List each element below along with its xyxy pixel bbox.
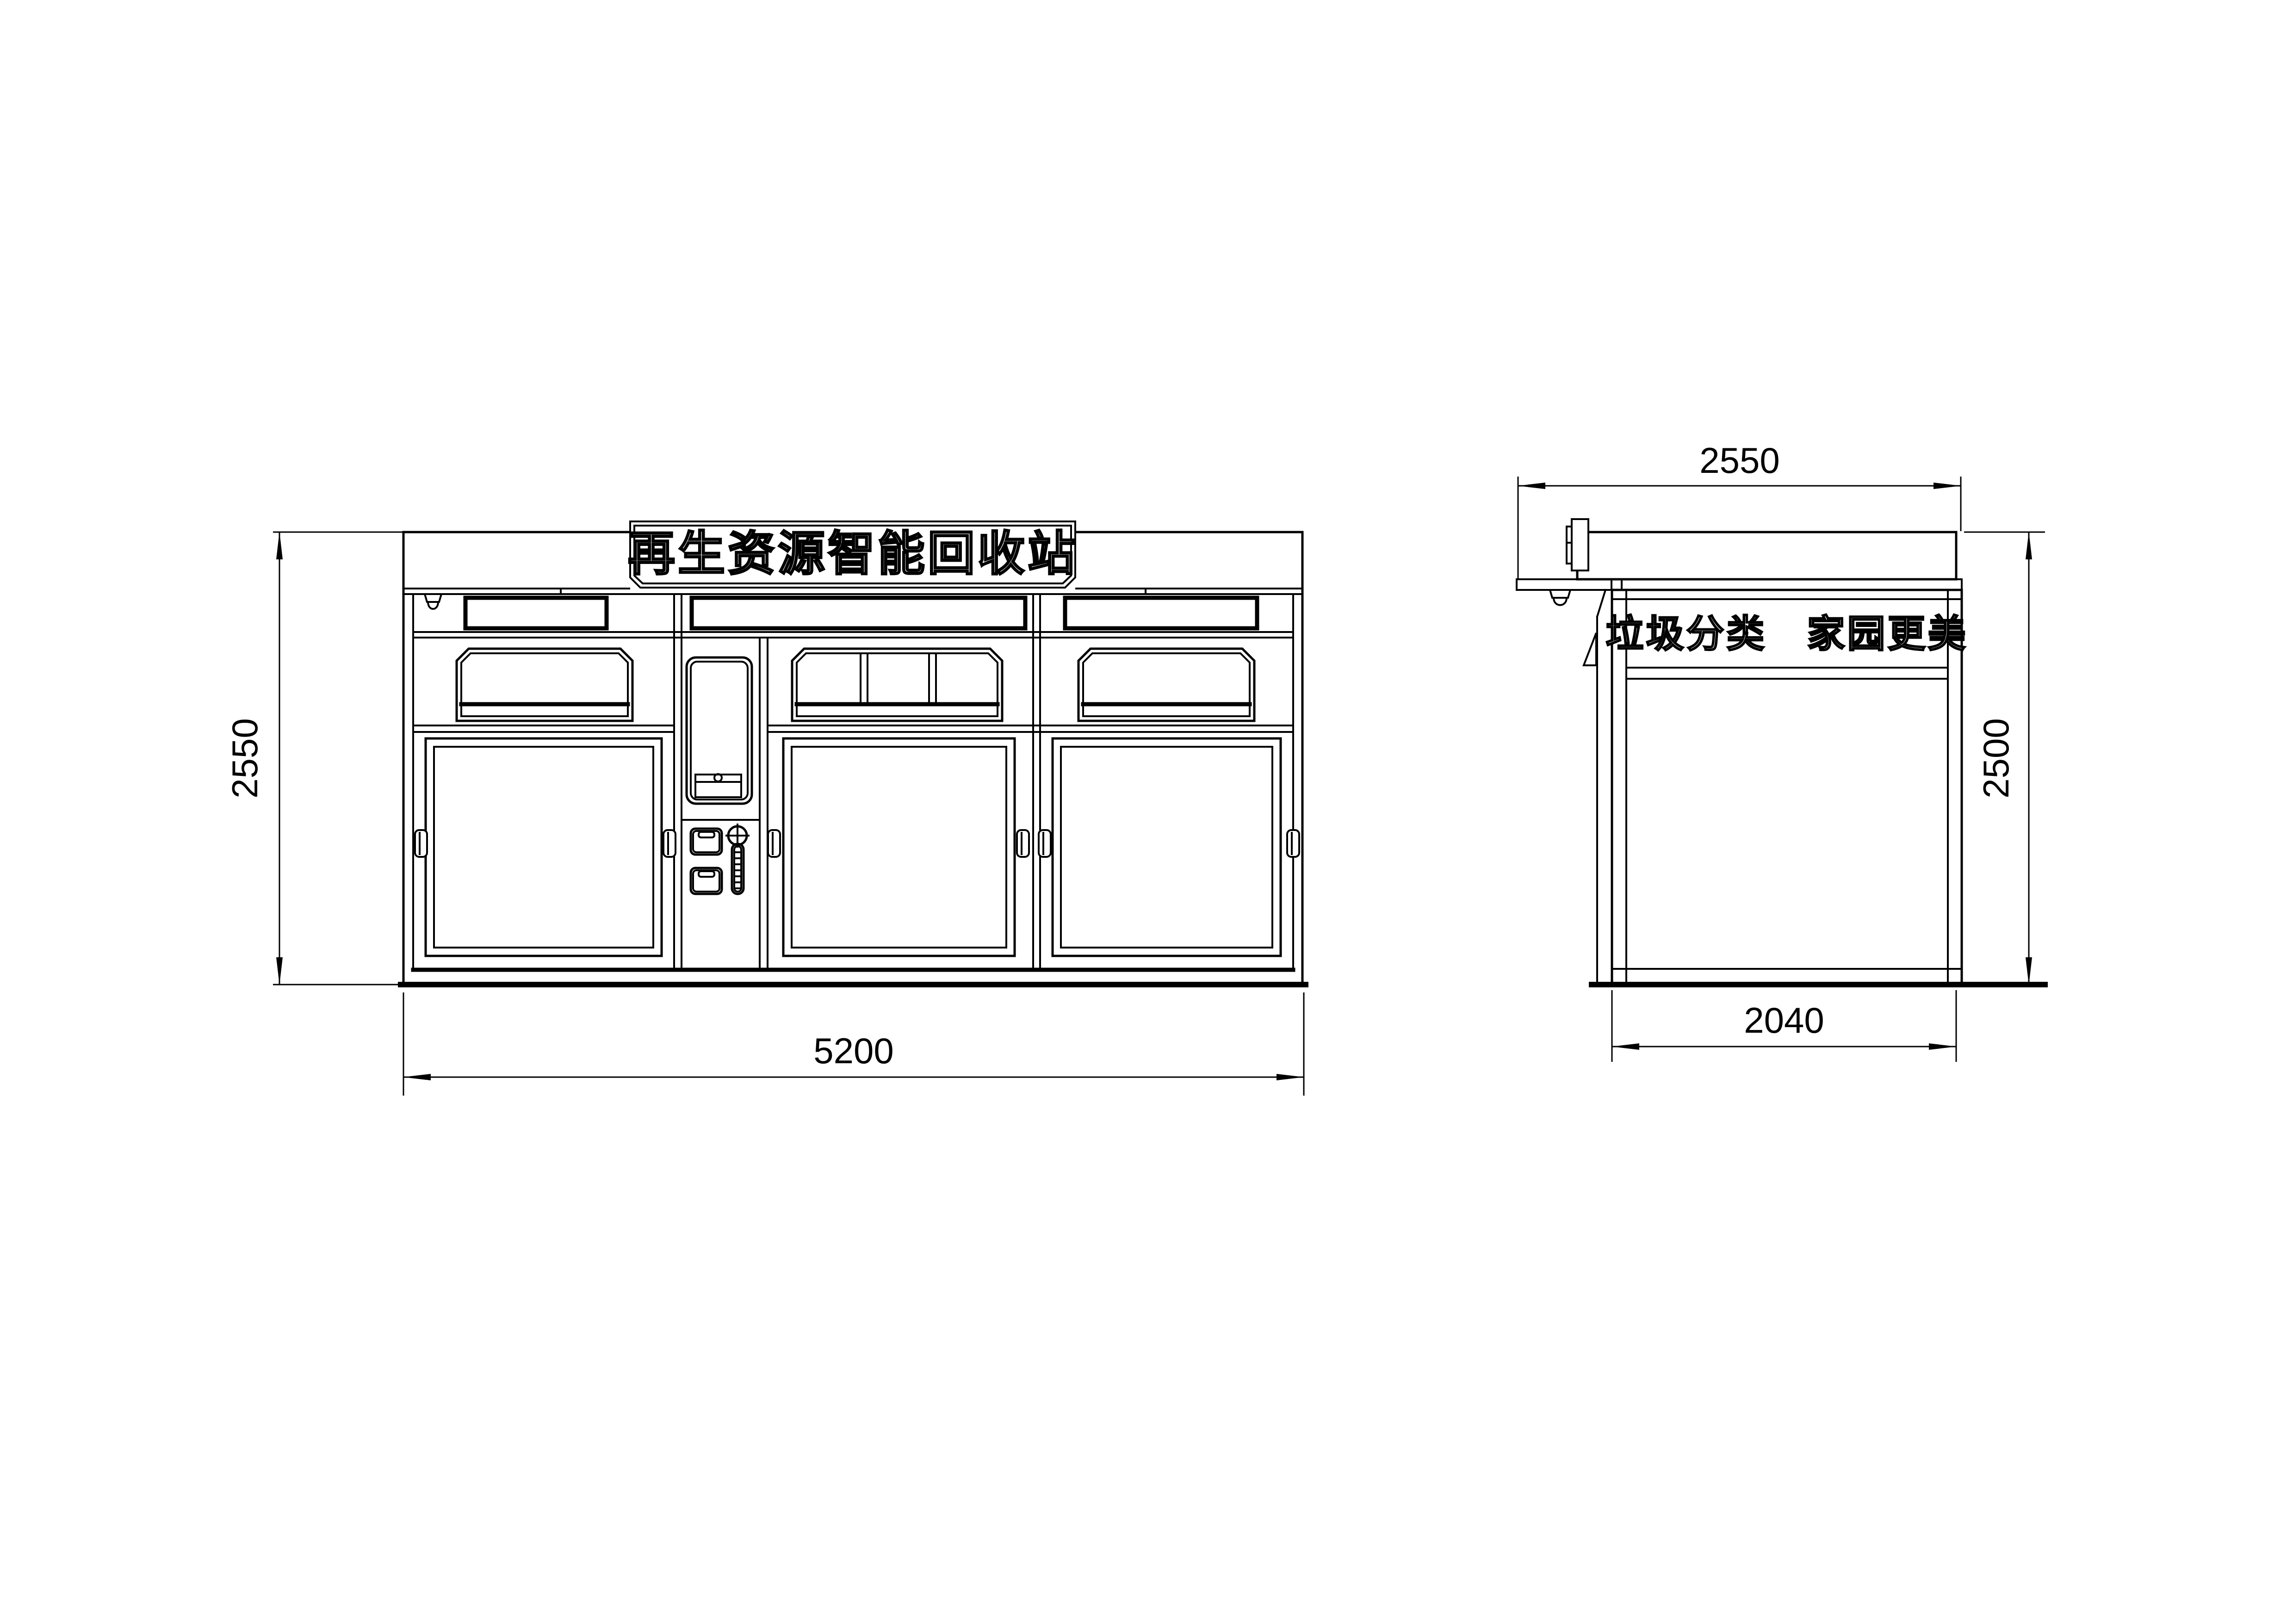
kiosk-column [682, 657, 760, 894]
dim-front-width: 5200 [403, 992, 1304, 1096]
door-outer [426, 738, 662, 956]
ad-slot-right [1065, 598, 1257, 628]
drawing-sheet: 再生资源智能回收站 [0, 0, 2293, 1624]
mid-band-lines [413, 725, 1293, 732]
door-outer [783, 738, 1015, 956]
door-handle [415, 830, 427, 857]
gusset-plate [1584, 633, 1596, 665]
banner-edge [1572, 519, 1588, 570]
door-outer [1053, 738, 1281, 956]
deposit-hopper-left [457, 649, 632, 721]
ad-slot-row [465, 598, 1257, 628]
hopper-outer [457, 649, 632, 721]
door-inner [792, 747, 1006, 948]
lock-ladder-lines [734, 852, 741, 888]
recycling-station-drawing: 再生资源智能回收站 [0, 0, 2293, 1624]
fascia-seams [1611, 579, 1622, 590]
sorting-windows [792, 649, 1002, 721]
dome-sensor-icon [1550, 590, 1570, 605]
dim-label-side-height: 2500 [1976, 718, 2016, 799]
inner-walls [413, 594, 1293, 970]
canopy-strut [1584, 590, 1605, 985]
dispenser-inner [693, 870, 719, 892]
slogan-text: 垃圾分类 家园更美 [1605, 613, 1968, 655]
cam-lock-icon [726, 824, 749, 894]
kiosk-column-wall [760, 638, 768, 970]
door-handle [663, 830, 676, 857]
banner-sign: 再生资源智能回收站 [628, 521, 1078, 588]
dome-sensor-icon [425, 594, 441, 609]
dim-label-front-width: 5200 [813, 1030, 894, 1071]
hopper-outer [1078, 649, 1254, 721]
slogan-band: 垃圾分类 家园更美 [1605, 613, 1968, 679]
hopper-inner [1083, 653, 1250, 716]
extension-lines [273, 532, 407, 985]
upper-band-lines [413, 632, 1293, 638]
dim-front-height: 2550 [224, 532, 407, 985]
dim-body-depth: 2040 [1612, 990, 1956, 1062]
divider-right [1033, 594, 1040, 970]
slogan-band-lines [1626, 668, 1948, 679]
dimensions: 2550 5200 2550 2500 2040 [224, 440, 2045, 1096]
dim-label-roof-depth: 2550 [1699, 440, 1780, 481]
dome-bulb [428, 602, 438, 609]
dome-bulb [1554, 598, 1567, 605]
front-view: 再生资源智能回收站 [401, 521, 1306, 985]
door-handle [768, 830, 780, 857]
door-handle [1017, 830, 1029, 857]
side-view: 垃圾分类 家园更美 [1517, 519, 2045, 985]
camera-panel [695, 774, 741, 797]
door-right [1053, 738, 1281, 956]
side-roof [1517, 519, 1962, 590]
window-mullions [861, 653, 936, 704]
receipt-dispenser-2 [691, 868, 722, 894]
banner-bracket [1567, 527, 1572, 564]
ad-slot-left [465, 598, 607, 628]
dome-base [1550, 590, 1570, 598]
receipt-dispenser-1 [691, 829, 722, 855]
dim-side-height: 2500 [1964, 532, 2045, 985]
roof-slab [1577, 532, 1956, 579]
dispenser-slot-icon [699, 871, 714, 877]
divider-left [674, 594, 682, 970]
strut-line [1597, 590, 1605, 985]
door-handles [415, 830, 1299, 857]
kiosk-screen-inner [691, 662, 748, 800]
camera-panel-frame [695, 775, 741, 797]
dome-base [425, 594, 441, 602]
ad-slot-center [692, 598, 1025, 628]
dispenser-slot-icon [699, 832, 714, 837]
fascia-strip [1517, 579, 1962, 590]
door-handle [1039, 830, 1051, 857]
dispenser-inner [693, 831, 719, 852]
windows-outer [792, 649, 1002, 721]
door-handle [1287, 830, 1299, 857]
banner-text: 再生资源智能回收站 [628, 527, 1078, 580]
door-inner [434, 747, 653, 948]
windows-inner [797, 653, 998, 716]
door-left [426, 738, 662, 956]
dim-label-body-depth: 2040 [1744, 1000, 1824, 1041]
hopper-inner [461, 653, 628, 716]
door-inner [1061, 747, 1272, 948]
dim-label-front-height: 2550 [224, 718, 265, 799]
door-center [783, 738, 1015, 956]
deposit-hopper-right [1078, 649, 1254, 721]
